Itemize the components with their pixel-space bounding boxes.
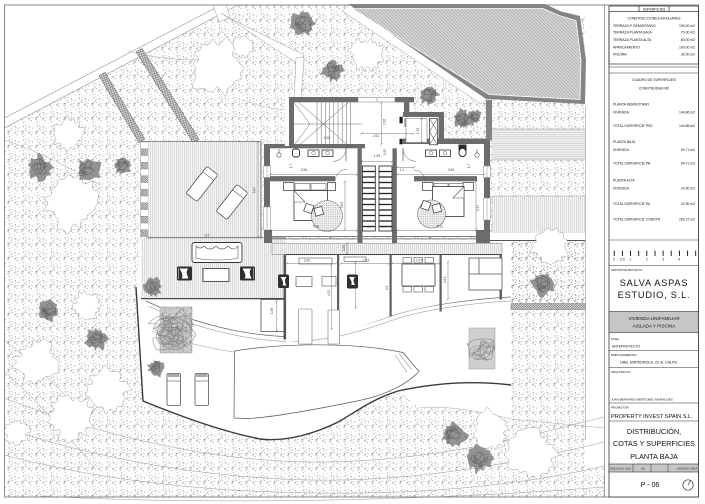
svg-text:1.2: 1.2 bbox=[400, 168, 405, 172]
svg-text:3.17: 3.17 bbox=[476, 205, 480, 211]
svg-text:PISCINA: PISCINA bbox=[613, 53, 627, 57]
svg-text:URB. EMPEDROLA, 22-A, CALPE: URB. EMPEDROLA, 22-A, CALPE bbox=[620, 361, 678, 365]
svg-text:DISTRIBUCIÓN,: DISTRIBUCIÓN, bbox=[627, 427, 681, 436]
svg-text:1: 1 bbox=[630, 258, 632, 262]
svg-text:94.71 m2: 94.71 m2 bbox=[681, 148, 695, 152]
svg-text:APARCAMIENTO: APARCAMIENTO bbox=[613, 46, 640, 50]
svg-text:AISLADA Y PISCINA: AISLADA Y PISCINA bbox=[633, 324, 677, 329]
svg-text:JUAN BERNARDO BERTOMEU MORAGUE: JUAN BERNARDO BERTOMEU MORAGUES bbox=[611, 398, 673, 402]
svg-text:0.7: 0.7 bbox=[382, 225, 387, 229]
svg-text:100.00 m2: 100.00 m2 bbox=[679, 46, 695, 50]
svg-text:CONSTRUIDAS M2: CONSTRUIDAS M2 bbox=[639, 87, 669, 91]
svg-text:70.00 m2: 70.00 m2 bbox=[681, 31, 695, 35]
svg-text:144.86 m2: 144.86 m2 bbox=[679, 124, 695, 128]
svg-text:P - 06: P - 06 bbox=[641, 482, 660, 489]
svg-text:0.7: 0.7 bbox=[367, 225, 372, 229]
svg-text:TERRAZA PLANTA ALTA: TERRAZA PLANTA ALTA bbox=[613, 38, 652, 42]
svg-text:5.31: 5.31 bbox=[437, 225, 443, 229]
svg-text:ANTEPROYECTO: ANTEPROYECTO bbox=[612, 345, 640, 349]
svg-text:94.71 m2: 94.71 m2 bbox=[681, 162, 695, 166]
svg-text:150.00 m2: 150.00 m2 bbox=[679, 24, 695, 28]
svg-text:1.33: 1.33 bbox=[416, 128, 420, 134]
svg-text:0.5: 0.5 bbox=[620, 258, 625, 262]
svg-text:PROMOTOR: PROMOTOR bbox=[611, 406, 629, 410]
svg-text:COTAS Y SUPERFICIES: COTAS Y SUPERFICIES bbox=[613, 439, 695, 448]
svg-text:2.61: 2.61 bbox=[373, 134, 379, 138]
svg-text:0.22: 0.22 bbox=[383, 149, 387, 155]
svg-text:0: 0 bbox=[613, 258, 615, 262]
svg-text:4.22: 4.22 bbox=[327, 290, 331, 296]
svg-text:TERRAZA PLANTA BAJA: TERRAZA PLANTA BAJA bbox=[613, 31, 652, 35]
svg-text:1.98: 1.98 bbox=[270, 308, 274, 314]
svg-text:0.98: 0.98 bbox=[342, 245, 346, 251]
svg-text:EMPLAZAMIENTO: EMPLAZAMIENTO bbox=[611, 353, 637, 357]
svg-text:3.83: 3.83 bbox=[340, 202, 344, 208]
svg-text:2.93: 2.93 bbox=[363, 259, 369, 263]
svg-text:CUADRO DE SUPERFICIES: CUADRO DE SUPERFICIES bbox=[632, 78, 677, 82]
svg-text:24.90 m2: 24.90 m2 bbox=[681, 202, 695, 206]
svg-text:VIVIENDA: VIVIENDA bbox=[613, 187, 630, 191]
svg-text:5.87: 5.87 bbox=[253, 187, 257, 193]
svg-text:TOTAL SUPERFICIE PA: TOTAL SUPERFICIE PA bbox=[613, 202, 651, 206]
svg-text:3.5: 3.5 bbox=[385, 286, 389, 291]
svg-text:PLANTA SEMISÓTANO: PLANTA SEMISÓTANO bbox=[613, 102, 649, 107]
svg-text:6.6: 6.6 bbox=[205, 234, 210, 238]
svg-text:TERRAZA P. SEMISÓTANO: TERRAZA P. SEMISÓTANO bbox=[613, 23, 656, 28]
svg-text:4: 4 bbox=[679, 258, 681, 262]
svg-text:PLANTA BAJA: PLANTA BAJA bbox=[613, 140, 636, 144]
svg-text:SUPERFICIES: SUPERFICIES bbox=[643, 7, 666, 11]
svg-text:PLANTA ALTA: PLANTA ALTA bbox=[613, 179, 635, 183]
svg-text:SALVA ASPAS: SALVA ASPAS bbox=[620, 278, 689, 288]
svg-text:FASE: FASE bbox=[611, 337, 619, 341]
svg-text:3.96: 3.96 bbox=[301, 168, 307, 172]
svg-text:TOTAL SUPERFICIE PSS: TOTAL SUPERFICIE PSS bbox=[613, 124, 653, 128]
svg-text:264.27 m2: 264.27 m2 bbox=[679, 218, 695, 222]
svg-text:2: 2 bbox=[646, 258, 648, 262]
svg-text:2.97: 2.97 bbox=[416, 259, 422, 263]
svg-text:1.7: 1.7 bbox=[289, 164, 293, 169]
svg-text:32.00 m2: 32.00 m2 bbox=[681, 53, 695, 57]
svg-text:3.96: 3.96 bbox=[448, 168, 454, 172]
svg-text:2.61: 2.61 bbox=[443, 277, 447, 283]
svg-text:VIVIENDA UNIFAMILIAR: VIVIENDA UNIFAMILIAR bbox=[628, 316, 680, 321]
svg-text:ESCALA 1:100: ESCALA 1:100 bbox=[611, 467, 631, 471]
svg-text:PROPERTY INVEST SPAIN S.L.: PROPERTY INVEST SPAIN S.L. bbox=[611, 414, 693, 420]
svg-text:ESTUDIO, S.L.: ESTUDIO, S.L. bbox=[618, 290, 691, 300]
svg-text:ARQUITECTO: ARQUITECTO bbox=[611, 370, 631, 374]
svg-text:1.7: 1.7 bbox=[467, 164, 471, 169]
svg-text:5.36: 5.36 bbox=[313, 225, 319, 229]
svg-text:1.98: 1.98 bbox=[324, 136, 330, 140]
svg-text:80.00 m2: 80.00 m2 bbox=[681, 38, 695, 42]
svg-text:1.59: 1.59 bbox=[374, 154, 380, 158]
svg-text:24.90 m2: 24.90 m2 bbox=[681, 187, 695, 191]
svg-text:CONSTRUCCIONES AUXILIARES: CONSTRUCCIONES AUXILIARES bbox=[628, 17, 682, 21]
svg-text:3: 3 bbox=[662, 258, 664, 262]
svg-text:TOTAL SUPERFICIE PB: TOTAL SUPERFICIE PB bbox=[613, 162, 651, 166]
svg-text:TOTAL SUPERFICIE CONSTR.: TOTAL SUPERFICIE CONSTR. bbox=[613, 218, 661, 222]
svg-text:A3: A3 bbox=[641, 467, 645, 471]
svg-text:VIVIENDA: VIVIENDA bbox=[613, 111, 630, 115]
svg-text:2.90: 2.90 bbox=[304, 259, 310, 263]
svg-text:PLANTA BAJA: PLANTA BAJA bbox=[630, 452, 678, 461]
svg-text:2.36: 2.36 bbox=[383, 119, 387, 125]
svg-text:144.86 m2: 144.86 m2 bbox=[679, 111, 695, 115]
svg-text:AGOSTO 2024: AGOSTO 2024 bbox=[677, 467, 698, 471]
svg-text:VIVIENDA: VIVIENDA bbox=[613, 148, 630, 152]
